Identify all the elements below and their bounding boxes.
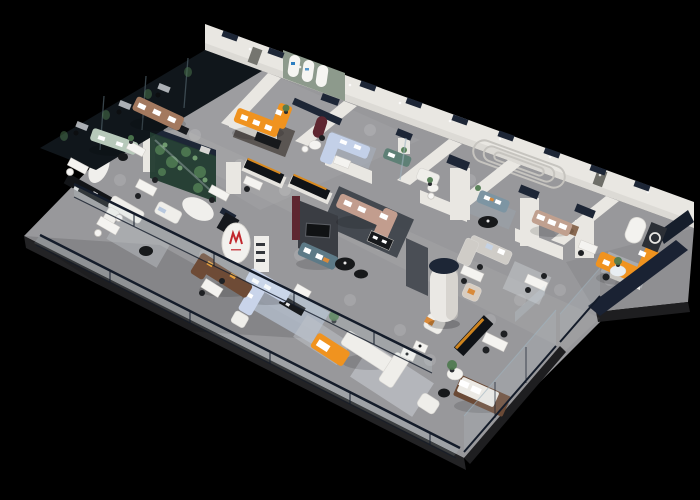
tv-screen bbox=[306, 223, 331, 238]
shelf-items bbox=[256, 243, 265, 262]
reception bbox=[222, 223, 250, 263]
cylinder-shade bbox=[446, 268, 458, 320]
cylinder-cap bbox=[429, 258, 459, 274]
pillar-1 bbox=[450, 168, 470, 220]
arch-logo-blue-1 bbox=[291, 62, 295, 65]
showroom-render bbox=[0, 0, 700, 500]
maroon-panel bbox=[292, 196, 300, 240]
isometric-floorplan-svg bbox=[0, 0, 700, 500]
gray-partition bbox=[406, 238, 428, 296]
pillar-5 bbox=[226, 162, 241, 194]
arch-logo-blue-2 bbox=[305, 68, 309, 71]
brand-logo-tagline bbox=[231, 249, 241, 251]
